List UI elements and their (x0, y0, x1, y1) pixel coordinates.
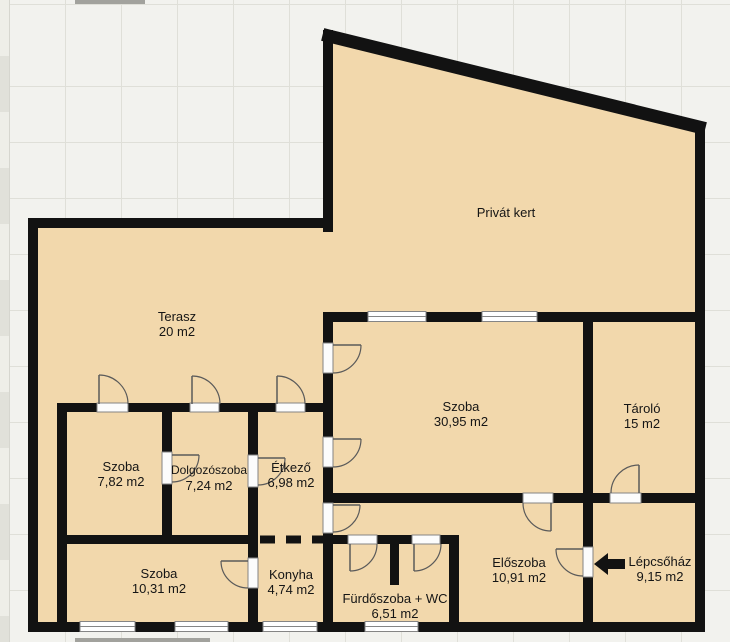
room-area: 4,74 m2 (268, 582, 315, 597)
room-name: Dolgozószoba (171, 463, 247, 478)
room-label-tarolo: Tároló 15 m2 (624, 401, 661, 431)
room-name: Étkező (268, 460, 315, 475)
door (323, 437, 333, 467)
door (276, 403, 305, 412)
room-label-konyha: Konyha 4,74 m2 (268, 567, 315, 597)
room-label-privat-kert: Privát kert (477, 205, 536, 220)
room-area: 6,51 m2 (342, 606, 447, 621)
door (248, 558, 258, 588)
room-label-terasz: Terasz 20 m2 (158, 309, 196, 339)
room-label-etkezo: Étkező 6,98 m2 (268, 460, 315, 490)
room-area: 7,82 m2 (98, 474, 145, 489)
room-area: 6,98 m2 (268, 475, 315, 490)
entrance-door (583, 547, 593, 577)
door (323, 503, 333, 533)
room-name: Privát kert (477, 205, 536, 220)
room-name: Előszoba (492, 555, 546, 570)
door (348, 535, 377, 544)
room-name: Fürdőszoba + WC (342, 591, 447, 606)
room-area: 10,91 m2 (492, 570, 546, 585)
door (190, 403, 219, 412)
room-label-eloszoba: Előszoba 10,91 m2 (492, 555, 546, 585)
room-label-szoba-nagy: Szoba 30,95 m2 (434, 399, 488, 429)
room-area: 20 m2 (158, 324, 196, 339)
door (97, 403, 128, 412)
door (248, 455, 258, 487)
room-label-dolgozoszoba: Dolgozószoba 7,24 m2 (171, 463, 247, 493)
room-name: Lépcsőház (629, 554, 692, 569)
floor-plan-drawing (0, 0, 730, 642)
door (412, 535, 440, 544)
room-name: Szoba (132, 566, 186, 581)
room-name: Tároló (624, 401, 661, 416)
door (610, 493, 641, 503)
room-label-lepcsohaz: Lépcsőház 9,15 m2 (629, 554, 692, 584)
room-name: Konyha (268, 567, 315, 582)
door (523, 493, 553, 503)
room-area: 15 m2 (624, 416, 661, 431)
floor-plan-canvas: Privát kert Terasz 20 m2 Szoba 30,95 m2 … (0, 0, 730, 642)
door (323, 343, 333, 373)
room-name: Szoba (98, 459, 145, 474)
room-name: Szoba (434, 399, 488, 414)
room-label-szoba-bal: Szoba 7,82 m2 (98, 459, 145, 489)
room-label-szoba-also: Szoba 10,31 m2 (132, 566, 186, 596)
room-area: 30,95 m2 (434, 414, 488, 429)
room-area: 7,24 m2 (171, 478, 247, 493)
room-area: 9,15 m2 (629, 569, 692, 584)
room-area: 10,31 m2 (132, 581, 186, 596)
room-name: Terasz (158, 309, 196, 324)
room-label-furdoszoba: Fürdőszoba + WC 6,51 m2 (342, 591, 447, 621)
